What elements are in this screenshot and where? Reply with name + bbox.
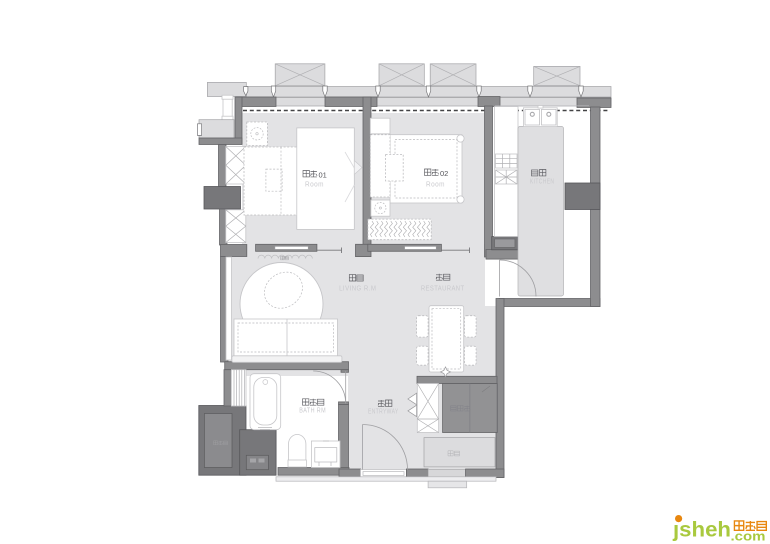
svg-text:ENTRYWAY: ENTRYWAY	[368, 409, 399, 416]
svg-text:02: 02	[440, 169, 448, 178]
svg-text:Room: Room	[305, 181, 324, 188]
svg-text:RESTAURANT: RESTAURANT	[421, 285, 465, 292]
svg-text:01: 01	[319, 171, 327, 180]
svg-text:BATH RM: BATH RM	[299, 408, 326, 415]
svg-text:LIVING R.M: LIVING R.M	[339, 286, 376, 293]
svg-text:KITCHEN: KITCHEN	[530, 178, 555, 185]
svg-text:Room: Room	[426, 181, 445, 188]
